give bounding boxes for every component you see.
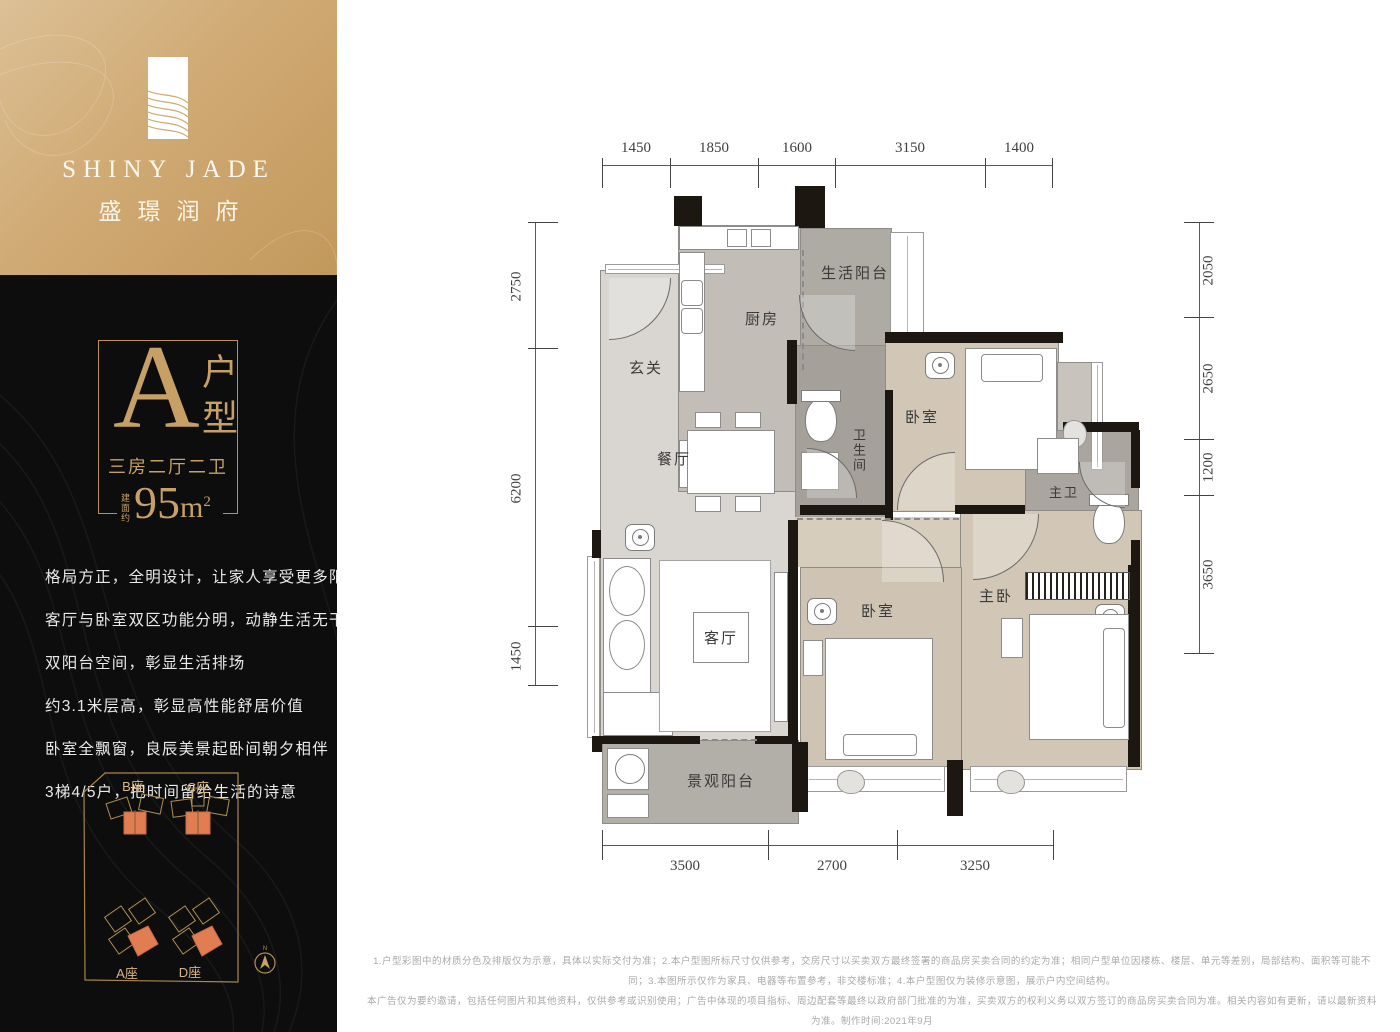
- siteplan-building-B: [106, 794, 163, 834]
- unit-type-letter: A: [113, 327, 200, 447]
- room-label-bath: 卫生间: [849, 428, 868, 473]
- disclaimer-line-1: 1.户型彩图中的材质分色及排版仅为示意，具体以实际交付为准；2.本户型图所标尺寸…: [367, 952, 1377, 992]
- wall: [592, 530, 601, 558]
- dim-tick: [528, 222, 558, 223]
- dim-tick: [1184, 653, 1214, 654]
- unit-type-label: 户型: [191, 353, 243, 445]
- sofa-cushion: [609, 620, 645, 670]
- kitchen-sink: [681, 308, 703, 334]
- dim-top-3: 1600: [767, 140, 827, 157]
- dim-bottom-1: 3500: [655, 858, 715, 875]
- disclaimer: 1.户型彩图中的材质分色及排版仅为示意，具体以实际交付为准；2.本户型图所标尺寸…: [367, 952, 1377, 1032]
- dim-tick: [985, 158, 986, 188]
- toilet-tank: [801, 390, 841, 402]
- siteplan-label-B: B座: [122, 779, 144, 794]
- tv-console: [774, 572, 788, 722]
- dim-tick: [835, 158, 836, 188]
- dim-right-3: 1200: [1201, 438, 1218, 498]
- unit-area: 建面约 95 m2: [117, 479, 223, 531]
- wall: [787, 340, 797, 404]
- siteplan-boundary: [84, 773, 238, 982]
- dim-right-4: 3650: [1201, 545, 1218, 605]
- dim-top-2: 1850: [684, 140, 744, 157]
- stove-icon: [751, 229, 771, 247]
- dining-chair: [695, 412, 721, 428]
- wall: [947, 760, 963, 816]
- wall: [800, 505, 890, 515]
- stove-icon: [727, 229, 747, 247]
- unit-type-box: A 户型 三房二厅二卫 建面约 95 m2: [98, 340, 238, 514]
- brand-name-en: SHINY JADE: [0, 156, 337, 184]
- room-label-entry: 玄关: [629, 357, 663, 378]
- unit-area-sup: 2: [203, 494, 211, 510]
- siteplan-label-C: C座: [187, 780, 209, 795]
- wall: [955, 505, 1025, 514]
- dim-tick: [528, 626, 558, 627]
- ac-unit-icon: [925, 352, 955, 379]
- room-label-bedroom-bottom: 卧室: [861, 600, 895, 621]
- ac-unit-icon: [625, 524, 655, 551]
- living-bay-window: [587, 556, 600, 738]
- dim-bottom-3: 3250: [945, 858, 1005, 875]
- wall: [600, 736, 700, 744]
- siteplan: B座 C座 A座 D座 N: [0, 748, 337, 1008]
- master-bedroom-window: [970, 766, 1127, 792]
- bed-pillow: [1103, 628, 1125, 728]
- hall-dash: [797, 518, 959, 520]
- dining-table: [687, 430, 775, 494]
- disclaimer-line-2: 本广告仅为要约邀请，包括任何图片和其他资料，仅供参考或识别使用；广告中体现的项目…: [367, 992, 1377, 1032]
- kitchen-sink: [681, 280, 703, 306]
- dim-top-1: 1450: [606, 140, 666, 157]
- dim-top-4: 3150: [880, 140, 940, 157]
- dim-tick: [528, 348, 558, 349]
- wall: [792, 742, 808, 812]
- balcony-threshold-dash: [702, 739, 757, 741]
- entry-window: [605, 264, 725, 274]
- dim-line-bottom: [602, 845, 1053, 846]
- dim-tick: [528, 685, 558, 686]
- wall: [885, 332, 1063, 343]
- dim-left-1: 2750: [509, 257, 526, 317]
- dim-tick: [897, 830, 898, 860]
- room-label-bedroom-top: 卧室: [905, 406, 939, 427]
- toilet-icon: [805, 398, 837, 442]
- balcony-sink: [607, 794, 649, 818]
- dim-tick: [602, 830, 603, 860]
- dining-chair: [695, 496, 721, 512]
- dim-bottom-2: 2700: [802, 858, 862, 875]
- brand-name-cn: 盛璟润府: [0, 192, 337, 226]
- siteplan-label-D: D座: [179, 965, 201, 980]
- dim-right-2: 2650: [1201, 349, 1218, 409]
- wall: [788, 520, 798, 742]
- room-label-dining: 餐厅: [657, 448, 691, 469]
- bedside-table: [1001, 618, 1023, 658]
- master-bath-sink: [1037, 438, 1079, 474]
- description-line: 格局方正，全明设计，让家人享受更多阳光呵护: [45, 556, 315, 599]
- room-label-master-bedroom: 主卧: [979, 585, 1013, 606]
- room-label-kitchen: 厨房: [745, 308, 779, 329]
- siteplan-building-D: [169, 898, 222, 956]
- room-label-master-bath: 主卫: [1049, 482, 1079, 501]
- bedside-table: [803, 640, 823, 676]
- sidebar: SHINY JADE 盛璟润府 A 户型 三房二厅二卫 建面约 95 m2 格局…: [0, 0, 337, 1032]
- ac-unit-icon: [807, 598, 837, 625]
- wall: [674, 196, 702, 226]
- bedroom-bottom-window: [805, 766, 945, 792]
- dim-line-left: [535, 222, 536, 685]
- dim-tick: [602, 158, 603, 188]
- dim-tick: [758, 158, 759, 188]
- description-line: 客厅与卧室双区功能分明，动静生活无干扰: [45, 599, 315, 642]
- siteplan-label-A: A座: [116, 966, 138, 981]
- bed-pillow: [981, 354, 1043, 382]
- dim-left-3: 1450: [509, 627, 526, 687]
- dim-tick: [768, 830, 769, 860]
- dim-left-2: 6200: [509, 459, 526, 519]
- dim-tick: [670, 158, 671, 188]
- wall: [592, 736, 602, 752]
- unit-area-value: 95: [134, 479, 180, 527]
- dim-tick: [1052, 158, 1053, 188]
- wall: [1131, 540, 1140, 565]
- room-label-living: 客厅: [693, 612, 749, 663]
- room-label-laundry: 生活阳台: [821, 262, 889, 283]
- wall: [1131, 430, 1140, 488]
- plant-blob: [837, 770, 865, 794]
- washer-drum: [615, 754, 645, 784]
- brand-block: SHINY JADE 盛璟润府: [0, 0, 337, 275]
- dim-right-1: 2050: [1201, 241, 1218, 301]
- room-label-view-balcony: 景观阳台: [687, 770, 755, 791]
- floorplan-panel: 1450 1850 1600 3150 1400 2750 6200 1450 …: [337, 0, 1400, 1032]
- sofa-cushion: [609, 566, 645, 616]
- compass-n: N: [263, 946, 267, 952]
- dim-tick: [1053, 830, 1054, 860]
- dim-tick: [1184, 222, 1214, 223]
- wall: [885, 390, 893, 520]
- dining-chair: [735, 496, 761, 512]
- wall: [795, 186, 825, 228]
- description-line: 约3.1米层高，彰显高性能舒居价值: [45, 685, 315, 728]
- compass-icon: N: [255, 946, 275, 973]
- description-line: 双阳台空间，彰显生活排场: [45, 642, 315, 685]
- unit-area-prefix: 建面约: [119, 493, 132, 523]
- bed-pillow: [843, 734, 917, 756]
- plant-blob: [997, 770, 1025, 794]
- dim-tick: [1184, 317, 1214, 318]
- unit-area-unit: m2: [180, 491, 211, 525]
- brand-logo-icon: [148, 57, 188, 139]
- siteplan-building-A: [105, 898, 158, 956]
- wardrobe: [1025, 572, 1130, 600]
- dim-top-5: 1400: [989, 140, 1049, 157]
- unit-layout: 三房二厅二卫: [99, 453, 237, 479]
- poster-canvas: { "brand": { "name_en": "SHINY JADE", "n…: [0, 0, 1400, 1032]
- dining-chair: [735, 412, 761, 428]
- bedroom-top-window: [1091, 362, 1103, 470]
